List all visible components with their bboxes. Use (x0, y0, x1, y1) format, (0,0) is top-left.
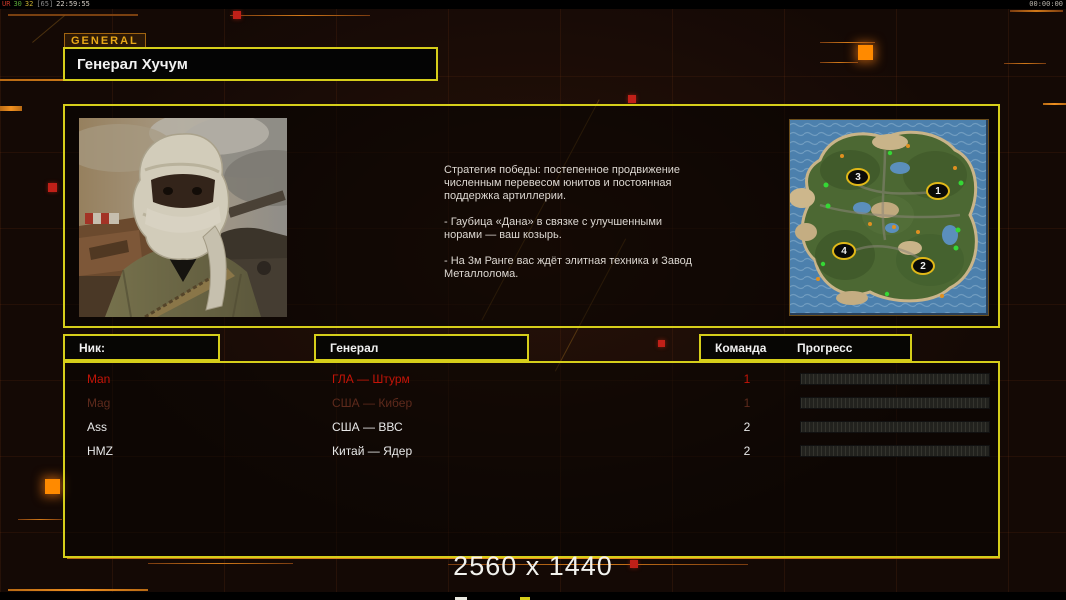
map-marker-2: 2 (911, 257, 935, 275)
decor-square (628, 95, 636, 103)
map-marker-4: 4 (832, 242, 856, 260)
header-team-label: Команда (701, 341, 797, 355)
decor-line (1004, 63, 1046, 64)
decor-line (8, 589, 148, 591)
decor-line (230, 15, 370, 16)
match-timer: 00:00:00 (1029, 0, 1063, 9)
header-general: Генерал (314, 334, 529, 361)
player-row: Mag США — Кибер 1 (65, 391, 998, 415)
bottom-letterbox (0, 592, 1066, 600)
header-nick: Ник: (63, 334, 220, 361)
debug-clock: 22:59:55 (56, 0, 90, 8)
decor-square (48, 183, 57, 192)
debug-segment: [65] (36, 0, 53, 8)
player-progress-bar (800, 397, 990, 409)
debug-overlay: UR3032[65]22:59:55 (2, 0, 93, 9)
player-team: 2 (717, 444, 777, 458)
player-row: Man ГЛА — Штурм 1 (65, 367, 998, 391)
decor-line (820, 62, 858, 63)
player-general: США — Кибер (332, 396, 717, 410)
portrait-art (79, 118, 287, 317)
strategy-paragraph: Стратегия победы: постепенное продвижени… (444, 164, 700, 203)
decor-line (18, 519, 62, 520)
debug-segment: 32 (25, 0, 33, 8)
briefing-panel: Стратегия победы: постепенное продвижени… (63, 104, 1000, 328)
header-team-progress: Команда Прогресс (699, 334, 912, 361)
players-table: Man ГЛА — Штурм 1 Mag США — Кибер 1 Ass … (63, 361, 1000, 558)
header-general-label: Генерал (316, 341, 378, 355)
debug-segment: UR (2, 0, 10, 8)
header-progress-label: Прогресс (797, 341, 852, 355)
header-nick-label: Ник: (65, 341, 105, 355)
player-general: США — ВВС (332, 420, 717, 434)
player-row: HMZ Китай — Ядер 2 (65, 439, 998, 463)
player-team: 2 (717, 420, 777, 434)
player-row: Ass США — ВВС 2 (65, 415, 998, 439)
decor-line (1043, 103, 1066, 105)
decor-line (820, 42, 875, 43)
strategy-text: Стратегия победы: постепенное продвижени… (444, 164, 700, 294)
player-progress-bar (800, 421, 990, 433)
player-general: ГЛА — Штурм (332, 372, 717, 386)
decor-line (8, 14, 138, 16)
player-progress-bar (800, 445, 990, 457)
general-name: Генерал Хучум (65, 56, 188, 73)
player-nick: Ass (87, 420, 332, 434)
player-general: Китай — Ядер (332, 444, 717, 458)
minimap: 1 2 3 4 (789, 119, 989, 316)
decor-line (0, 106, 22, 111)
minimap-art (790, 120, 986, 313)
loading-screen: UR3032[65]22:59:55 00:00:00 GENERAL Гене… (0, 0, 1066, 600)
resolution-label: 2560 x 1440 (0, 551, 1066, 582)
player-nick: Mag (87, 396, 332, 410)
player-nick: HMZ (87, 444, 332, 458)
decor-line (1010, 10, 1063, 12)
player-nick: Man (87, 372, 332, 386)
player-team: 1 (717, 372, 777, 386)
decor-square (658, 340, 665, 347)
map-marker-1: 1 (926, 182, 950, 200)
strategy-paragraph: - На 3м Ранге вас ждёт элитная техника и… (444, 255, 700, 281)
player-team: 1 (717, 396, 777, 410)
general-portrait (79, 118, 287, 317)
general-title-box: Генерал Хучум (63, 47, 438, 81)
decor-square-glow (858, 45, 873, 60)
decor-diagonal (32, 15, 65, 43)
decor-square (233, 11, 241, 19)
decor-square-glow (45, 479, 60, 494)
debug-segment: 30 (13, 0, 21, 8)
top-letterbox (0, 0, 1066, 9)
strategy-paragraph: - Гаубица «Дана» в связке с улучшенными … (444, 216, 700, 242)
player-progress-bar (800, 373, 990, 385)
map-marker-3: 3 (846, 168, 870, 186)
